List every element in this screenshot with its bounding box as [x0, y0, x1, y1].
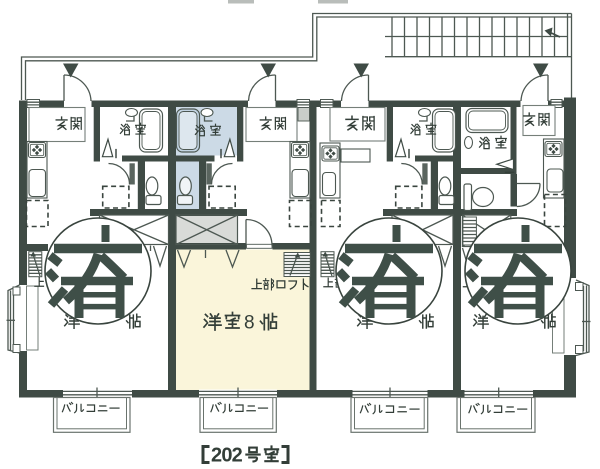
svg-text:8: 8 [244, 313, 255, 334]
svg-text:202: 202 [211, 445, 243, 467]
